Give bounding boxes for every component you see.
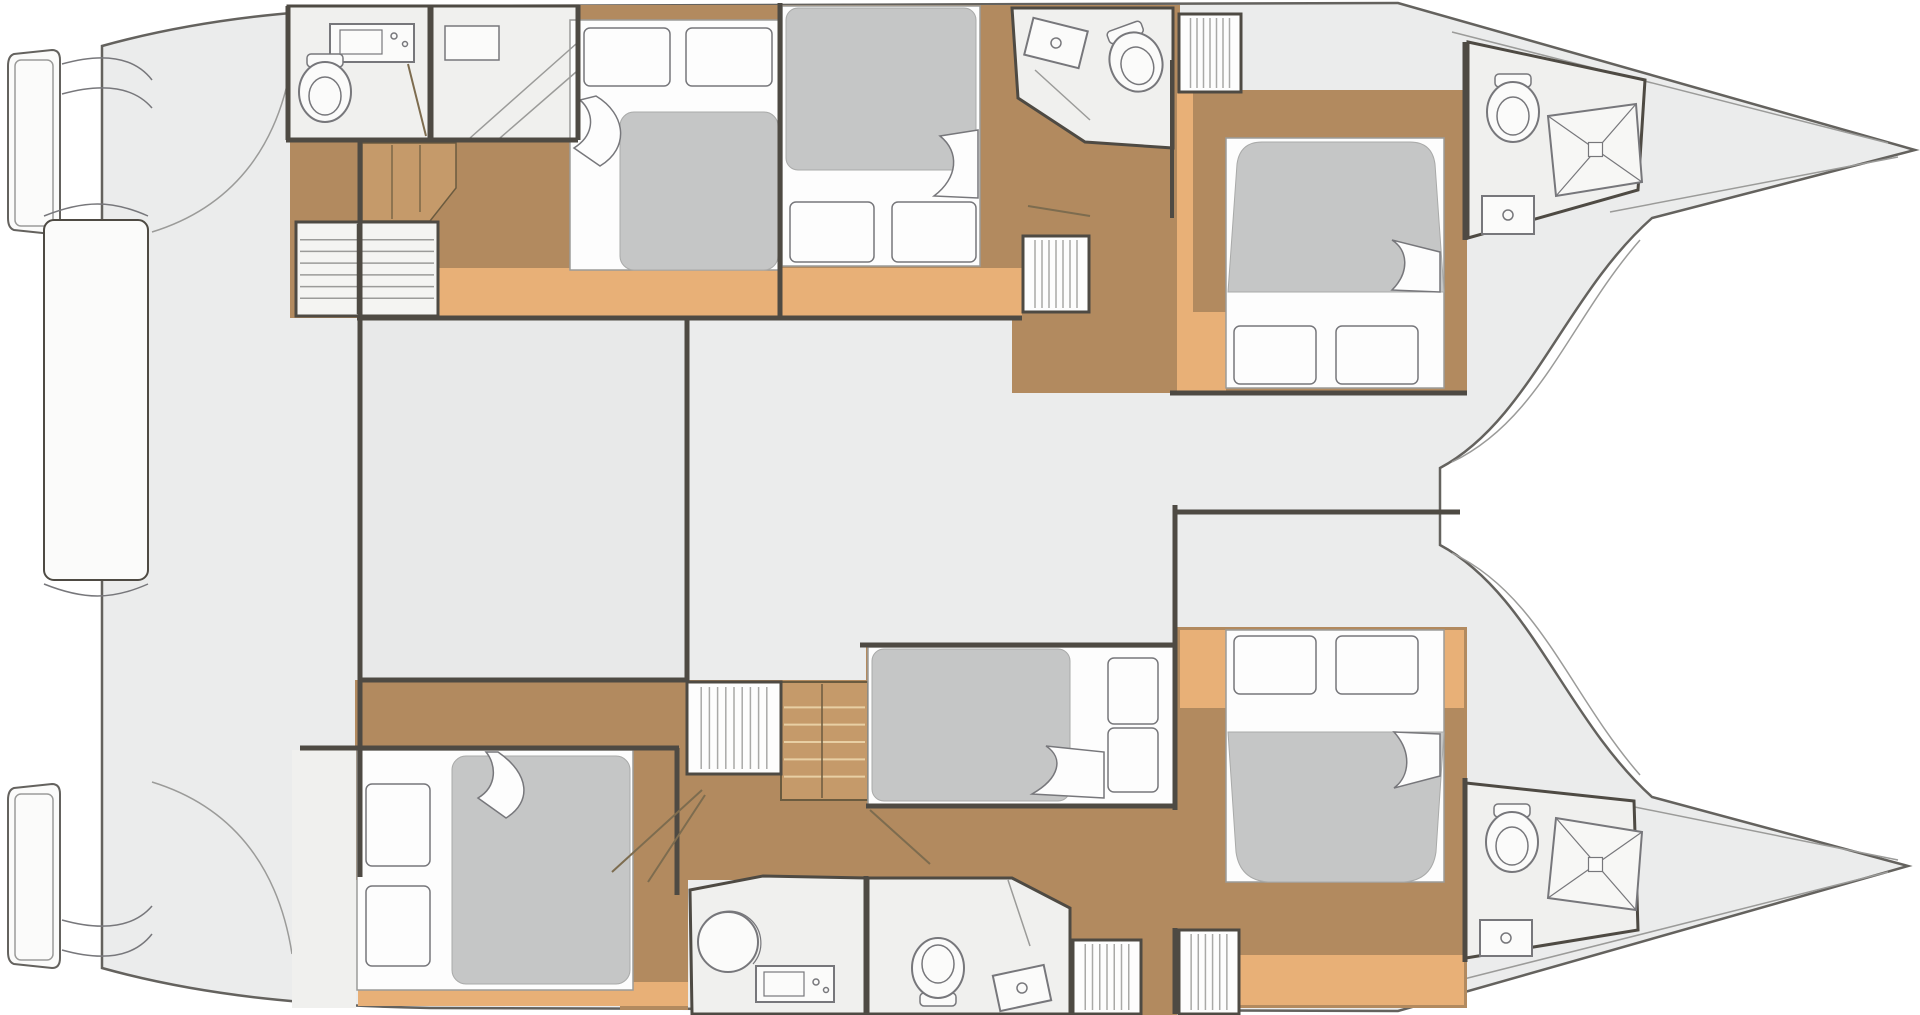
bed-port-mid-mattress	[786, 8, 976, 170]
transom-platform-starboard	[8, 784, 60, 968]
bed-port-mid-pillow-1	[790, 202, 874, 262]
toilet-port-fwd	[1487, 74, 1539, 142]
trim-block-stbd-fwd-left	[1180, 630, 1226, 708]
shower-stbd-fwd	[1548, 818, 1642, 910]
wardrobe-port-mid-stripes	[1191, 18, 1230, 88]
wardrobe-port-corridor-stripes	[1035, 240, 1077, 308]
bed-stbd-aft-mattress	[452, 756, 630, 984]
bed-stbd-fwd-pillow-1	[1234, 636, 1316, 694]
cockpit-aft-platform	[44, 220, 148, 580]
bed-port-mid-pillow-2	[892, 202, 976, 262]
trim-block-port-fwd	[1180, 312, 1226, 392]
bed-stbd-mid-mattress	[872, 649, 1070, 801]
salon-floor	[362, 318, 685, 680]
shower-pan-stbd-aft	[698, 912, 758, 972]
transom-platform-port	[8, 50, 60, 234]
bed-stbd-aft-pillow-1	[366, 784, 430, 866]
bed-port-aft-pillow-2	[686, 28, 772, 86]
sink-port-fwd	[1482, 196, 1534, 234]
wardrobe-starboard-mid-stripes	[1085, 944, 1129, 1010]
bed-stbd-aft-pillow-2	[366, 886, 430, 966]
floor-plan-svg	[0, 0, 1920, 1015]
bed-port-fwd-pillow-2	[1336, 326, 1418, 384]
bed-stbd-fwd-pillow-2	[1336, 636, 1418, 694]
shower-port-fwd	[1548, 104, 1642, 196]
toilet-stbd-mid	[912, 938, 964, 1006]
shelf-port-shower	[445, 26, 499, 60]
trim-band-port-cabins	[432, 268, 1022, 318]
floor-patch-stbd-aft-side	[292, 750, 356, 1008]
floor-plan	[0, 0, 1920, 1015]
bed-port-aft-pillow-1	[584, 28, 670, 86]
bed-stbd-mid-pillow-2	[1108, 728, 1158, 792]
sink-stbd-fwd	[1480, 920, 1532, 956]
wardrobe-starboard-fwd	[1179, 930, 1239, 1014]
bed-port-fwd-pillow-1	[1234, 326, 1316, 384]
stairs-port-lower	[296, 222, 438, 316]
toilet-port-aft	[299, 54, 351, 122]
toilet-stbd-fwd	[1486, 804, 1538, 872]
bed-port-aft-mattress	[620, 112, 778, 270]
bed-stbd-mid-pillow-1	[1108, 658, 1158, 724]
